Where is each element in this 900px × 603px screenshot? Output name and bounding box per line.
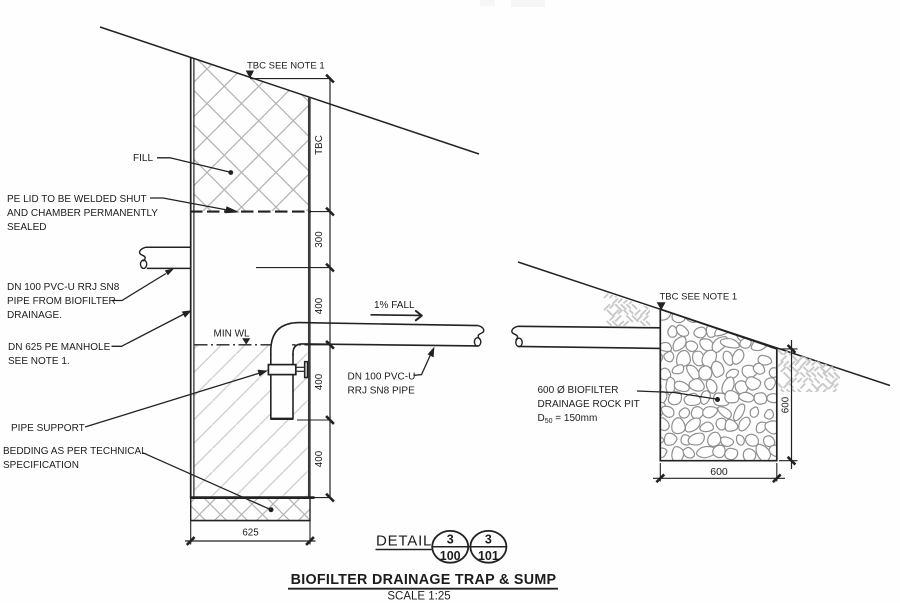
svg-text:3: 3 [485,532,492,546]
svg-text:600: 600 [710,466,728,478]
svg-text:400: 400 [314,297,325,314]
svg-text:PE LID TO BE WELDED SHUT: PE LID TO BE WELDED SHUT [7,194,147,205]
svg-text:1% FALL: 1% FALL [374,300,415,311]
svg-text:TBC: TBC [314,135,325,155]
svg-text:300: 300 [314,231,325,248]
svg-text:600: 600 [781,396,792,413]
svg-text:600 Ø BIOFILTER: 600 Ø BIOFILTER [538,385,619,396]
svg-text:BIOFILTER DRAINAGE TRAP & SUMP: BIOFILTER DRAINAGE TRAP & SUMP [291,572,557,588]
svg-text:RRJ SN8 PIPE: RRJ SN8 PIPE [348,386,416,397]
svg-text:SEE NOTE 1.: SEE NOTE 1. [8,356,70,367]
svg-text:BEDDING AS PER TECHNICAL: BEDDING AS PER TECHNICAL [3,446,147,457]
svg-text:SCALE 1:25: SCALE 1:25 [387,591,450,603]
svg-text:DETAIL: DETAIL [376,533,432,550]
svg-text:DRAINAGE.: DRAINAGE. [7,310,62,321]
svg-text:101: 101 [478,549,499,563]
svg-text:FILL: FILL [133,153,153,164]
svg-text:3: 3 [447,532,454,546]
svg-text:PIPE FROM BIOFILTER: PIPE FROM BIOFILTER [7,296,116,307]
svg-text:400: 400 [314,450,325,467]
svg-text:PIPE SUPPORT: PIPE SUPPORT [11,423,85,434]
svg-text:AND CHAMBER PERMANENTLY: AND CHAMBER PERMANENTLY [7,208,158,219]
svg-text:SEALED: SEALED [7,222,46,233]
svg-text:DN 100 PVC-U: DN 100 PVC-U [348,372,416,383]
svg-text:DRAINAGE ROCK PIT: DRAINAGE ROCK PIT [538,399,640,410]
svg-text:400: 400 [314,373,325,390]
svg-text:DN 625 PE MANHOLE: DN 625 PE MANHOLE [8,342,111,353]
svg-text:SPECIFICATION: SPECIFICATION [3,460,79,471]
svg-text:TBC SEE NOTE 1: TBC SEE NOTE 1 [660,292,738,303]
svg-text:625: 625 [242,528,259,539]
svg-text:DN 100 PVC-U RRJ SN8: DN 100 PVC-U RRJ SN8 [7,282,120,293]
svg-text:100: 100 [440,549,461,563]
svg-text:MIN WL: MIN WL [214,329,251,340]
svg-text:TBC SEE NOTE 1: TBC SEE NOTE 1 [247,61,325,72]
